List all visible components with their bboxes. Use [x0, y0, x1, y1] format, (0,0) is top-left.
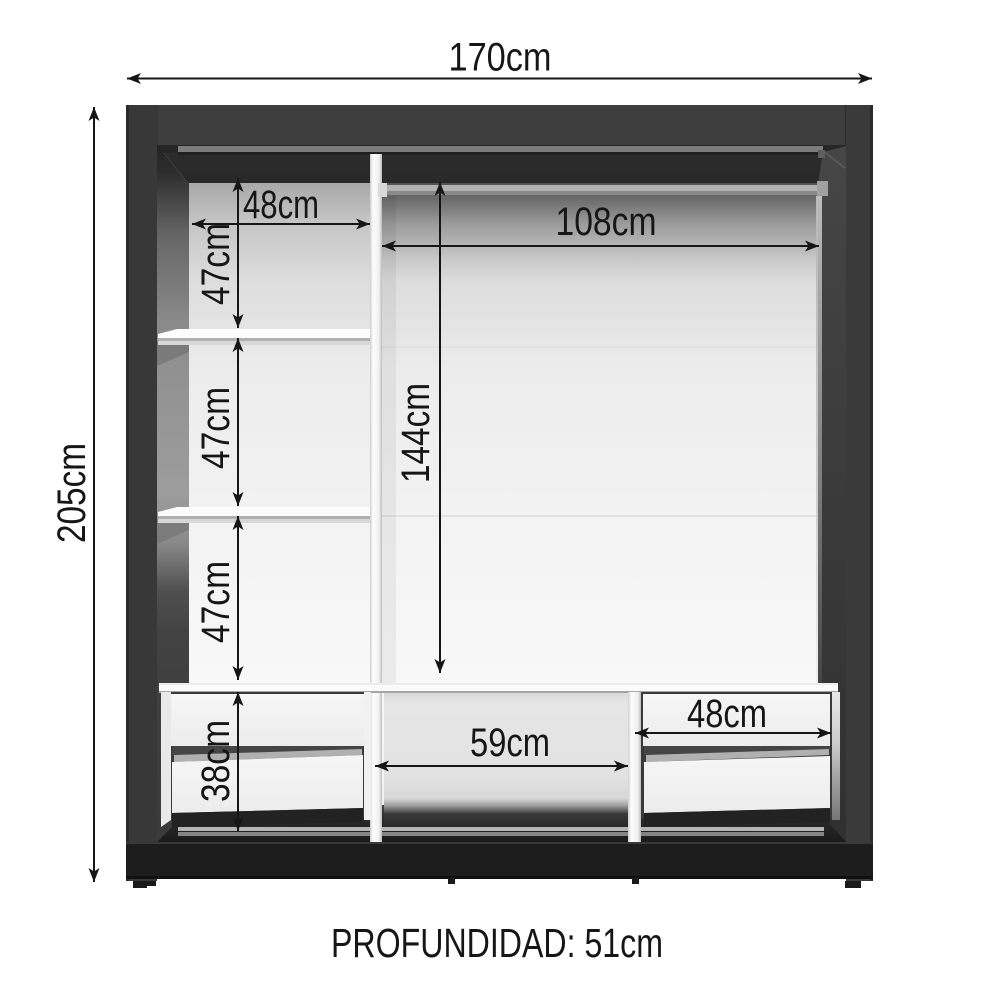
- svg-text:144cm: 144cm: [394, 383, 438, 483]
- svg-text:47cm: 47cm: [194, 387, 238, 469]
- svg-text:170cm: 170cm: [449, 36, 552, 80]
- svg-text:48cm: 48cm: [687, 692, 767, 736]
- svg-text:59cm: 59cm: [470, 721, 550, 765]
- svg-text:48cm: 48cm: [243, 183, 319, 227]
- svg-text:47cm: 47cm: [194, 223, 238, 305]
- svg-text:47cm: 47cm: [194, 561, 238, 643]
- svg-text:38cm: 38cm: [194, 720, 238, 802]
- svg-text:108cm: 108cm: [556, 200, 657, 244]
- svg-text:PROFUNDIDAD: 51cm: PROFUNDIDAD: 51cm: [331, 920, 663, 966]
- svg-text:205cm: 205cm: [50, 443, 94, 543]
